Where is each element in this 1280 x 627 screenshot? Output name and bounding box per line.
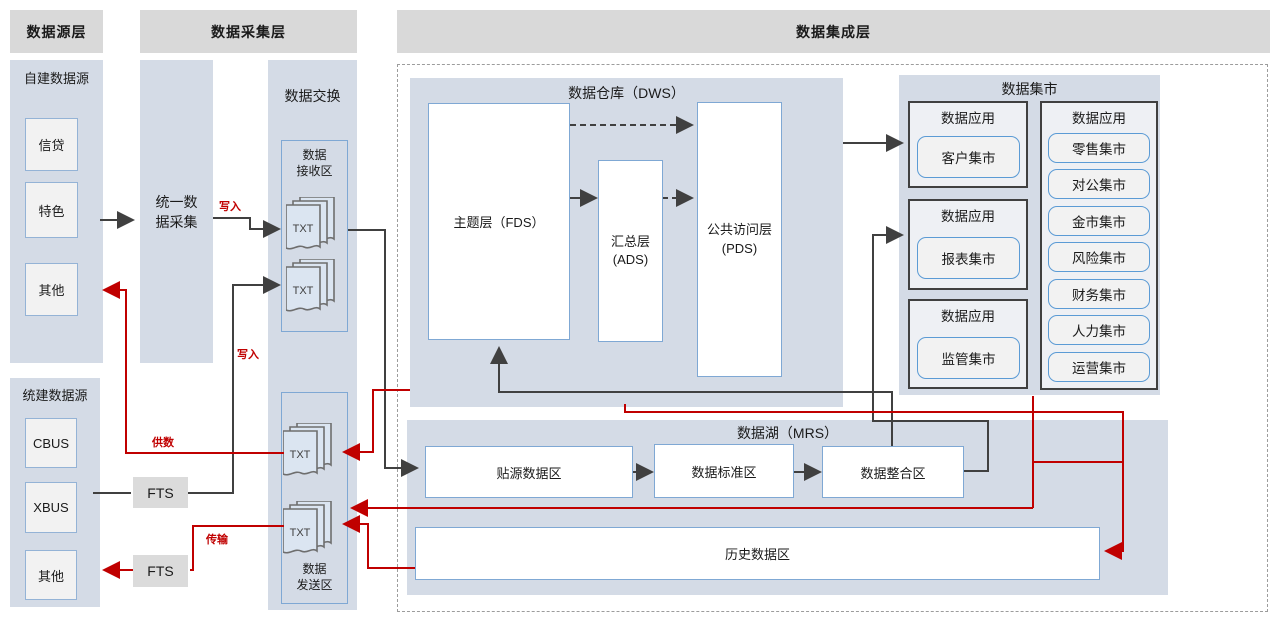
data-exchange-title: 数据交换 xyxy=(268,86,357,106)
fts-box-top: FTS xyxy=(133,477,188,508)
mart-item-customer: 客户集市 xyxy=(917,136,1020,178)
svg-text:TXT: TXT xyxy=(290,449,311,461)
fts-box-bottom: FTS xyxy=(133,555,188,587)
dws-fds-box: 主题层（FDS） xyxy=(428,103,570,340)
mart-item-regulatory: 监管集市 xyxy=(917,337,1020,379)
data-app-2-title: 数据应用 xyxy=(910,205,1026,225)
edge-label-write-2: 写入 xyxy=(237,346,259,362)
data-app-right-title: 数据应用 xyxy=(1042,107,1156,127)
mart-item-retail: 零售集市 xyxy=(1048,133,1150,163)
mart-item-operations: 运营集市 xyxy=(1048,352,1150,382)
data-mart-title: 数据集市 xyxy=(899,79,1160,99)
txt-files-send-2-icon: TXT xyxy=(283,501,337,557)
svg-text:TXT: TXT xyxy=(293,285,314,297)
edge-label-write-1: 写入 xyxy=(219,198,241,214)
self-built-source-title: 自建数据源 xyxy=(10,68,103,87)
mart-item-corporate: 对公集市 xyxy=(1048,169,1150,199)
txt-files-receive-1-icon: TXT xyxy=(286,197,340,253)
data-architecture-diagram: 数据源层 数据采集层 数据集成层 自建数据源 信贷 特色 其他 统建数据源 CB… xyxy=(0,0,1280,627)
data-app-1-title: 数据应用 xyxy=(910,107,1026,127)
mart-item-risk: 风险集市 xyxy=(1048,242,1150,272)
mart-item-hr: 人力集市 xyxy=(1048,315,1150,345)
send-zone-title: 数据 发送区 xyxy=(282,561,347,593)
edge-label-transfer: 传输 xyxy=(206,531,228,547)
header-collect-layer: 数据采集层 xyxy=(140,10,357,53)
txt-files-send-1-icon: TXT xyxy=(283,423,337,479)
header-integration-layer: 数据集成层 xyxy=(397,10,1270,53)
mart-item-report: 报表集市 xyxy=(917,237,1020,279)
txt-files-receive-2-icon: TXT xyxy=(286,259,340,315)
lake-zone-integration: 数据整合区 xyxy=(822,446,964,498)
header-source-layer: 数据源层 xyxy=(10,10,103,53)
source-box-other-self: 其他 xyxy=(25,263,78,316)
dws-pds-box: 公共访问层 (PDS) xyxy=(697,102,782,377)
mart-item-finance: 财务集市 xyxy=(1048,279,1150,309)
svg-text:TXT: TXT xyxy=(290,527,311,539)
source-box-special: 特色 xyxy=(25,182,78,238)
edge-label-supply: 供数 xyxy=(152,434,174,450)
unified-data-collect-box: 统一数 据采集 xyxy=(140,60,213,363)
dws-title: 数据仓库（DWS） xyxy=(410,83,843,103)
mart-item-financial-market: 金市集市 xyxy=(1048,206,1150,236)
source-box-credit: 信贷 xyxy=(25,118,78,171)
data-app-3-title: 数据应用 xyxy=(910,305,1026,325)
lake-zone-standard: 数据标准区 xyxy=(654,444,794,498)
svg-text:TXT: TXT xyxy=(293,223,314,235)
receive-zone-title: 数据 接收区 xyxy=(282,147,347,179)
source-box-cbus: CBUS xyxy=(25,418,77,468)
data-lake-title: 数据湖（MRS） xyxy=(407,423,1168,443)
source-box-xbus: XBUS xyxy=(25,482,77,533)
unified-source-title: 统建数据源 xyxy=(10,385,100,404)
dws-ads-box: 汇总层 (ADS) xyxy=(598,160,663,342)
lake-zone-source: 贴源数据区 xyxy=(425,446,633,498)
source-box-other-unified: 其他 xyxy=(25,550,77,600)
lake-history-zone: 历史数据区 xyxy=(415,527,1100,580)
